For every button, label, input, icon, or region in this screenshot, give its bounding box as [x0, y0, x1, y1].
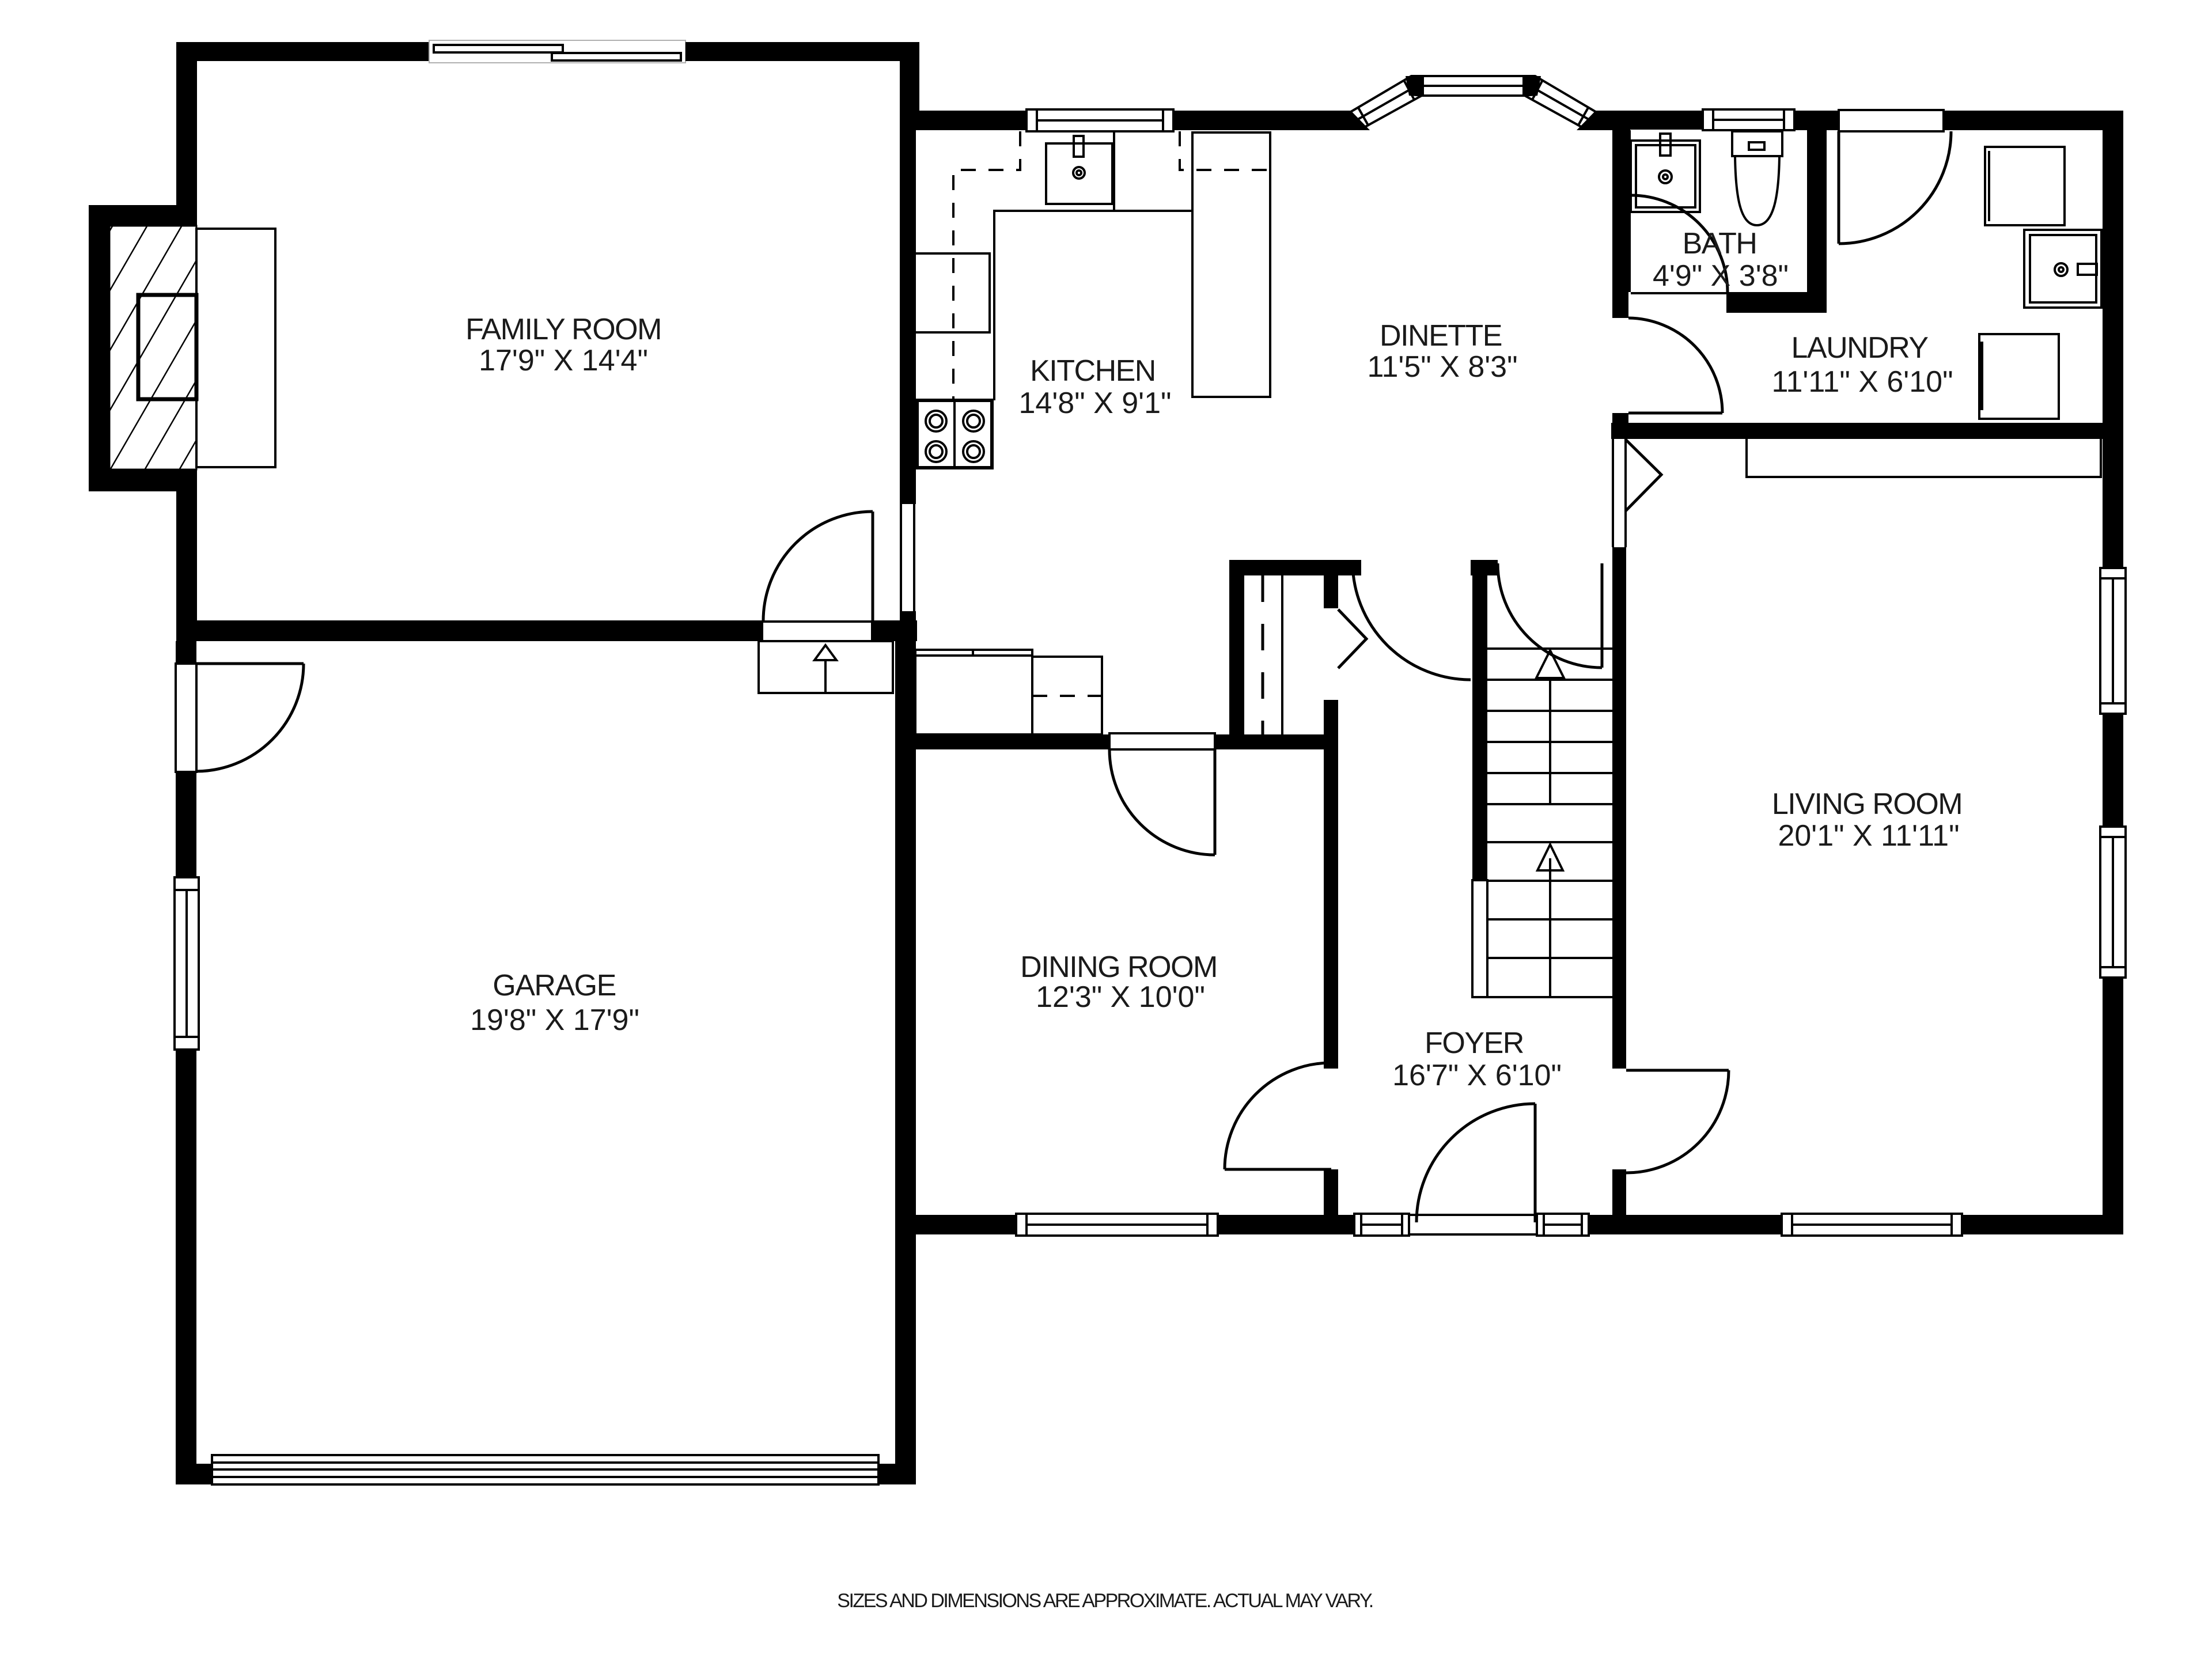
svg-text:17'9" X 14'4": 17'9" X 14'4": [479, 344, 648, 377]
svg-text:BATH: BATH: [1683, 227, 1757, 260]
svg-text:12'3" X 10'0": 12'3" X 10'0": [1036, 980, 1205, 1014]
svg-text:FOYER: FOYER: [1425, 1027, 1524, 1060]
svg-text:16'7" X 6'10": 16'7" X 6'10": [1392, 1059, 1562, 1092]
svg-text:KITCHEN: KITCHEN: [1030, 354, 1156, 388]
svg-text:14'8" X 9'1": 14'8" X 9'1": [1019, 387, 1172, 420]
svg-text:11'11" X 6'10": 11'11" X 6'10": [1771, 365, 1953, 399]
svg-text:DINETTE: DINETTE: [1380, 319, 1502, 353]
svg-text:19'8" X 17'9": 19'8" X 17'9": [470, 1003, 639, 1037]
svg-text:SIZES AND DIMENSIONS ARE APPRO: SIZES AND DIMENSIONS ARE APPROXIMATE. AC…: [837, 1590, 1372, 1612]
svg-text:DINING ROOM: DINING ROOM: [1020, 950, 1217, 984]
svg-text:FAMILY ROOM: FAMILY ROOM: [465, 313, 661, 346]
svg-text:GARAGE: GARAGE: [493, 969, 616, 1002]
svg-text:20'1" X 11'11": 20'1" X 11'11": [1778, 819, 1959, 853]
svg-text:LAUNDRY: LAUNDRY: [1791, 331, 1928, 365]
svg-text:4'9" X 3'8": 4'9" X 3'8": [1653, 259, 1789, 293]
svg-text:11'5" X 8'3": 11'5" X 8'3": [1367, 350, 1517, 384]
svg-text:LIVING ROOM: LIVING ROOM: [1772, 787, 1962, 821]
